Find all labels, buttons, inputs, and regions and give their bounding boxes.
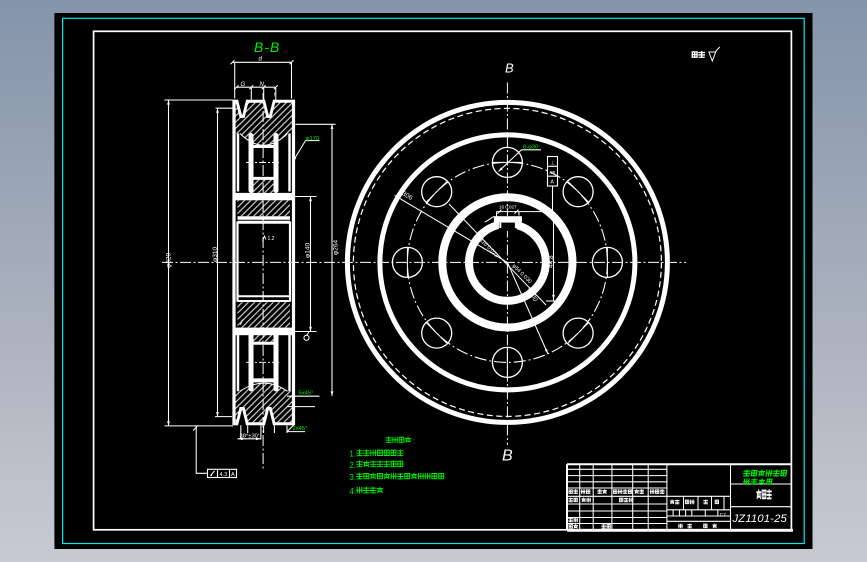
svg-text:φ170: φ170 [306, 136, 319, 142]
svg-text:1.2: 1.2 [268, 236, 275, 242]
svg-text:φ310: φ310 [212, 247, 219, 262]
svg-text:3.: 3. [349, 473, 356, 482]
svg-text:38°±30': 38°±30' [240, 434, 260, 440]
svg-text:.08: .08 [549, 170, 556, 175]
svg-text:8-φ30: 8-φ30 [523, 144, 538, 150]
svg-text:φ140: φ140 [305, 243, 312, 258]
svg-text:5x45°: 5x45° [299, 390, 314, 396]
svg-text:φ264: φ264 [333, 240, 340, 255]
svg-text:B: B [505, 61, 514, 76]
svg-text:A: A [231, 472, 235, 478]
svg-text:φ320: φ320 [166, 253, 173, 268]
svg-text:G: G [241, 82, 246, 88]
svg-text:44.8: 44.8 [548, 255, 555, 268]
svg-text:C7: C7 [720, 512, 726, 518]
svg-text:⊥: ⊥ [551, 161, 555, 167]
svg-text:4.3: 4.3 [220, 472, 228, 478]
svg-text:2x45°: 2x45° [293, 426, 308, 432]
svg-text:2.: 2. [349, 461, 356, 470]
svg-text:N: N [260, 82, 265, 88]
svg-text::: : [413, 438, 415, 445]
svg-text:1.: 1. [349, 450, 356, 459]
svg-text:B-B: B-B [254, 39, 280, 55]
svg-text:JZ1101-25: JZ1101-25 [732, 513, 788, 525]
svg-text:4.: 4. [349, 487, 356, 496]
svg-text:16 0.027: 16 0.027 [499, 204, 517, 209]
svg-text:B: B [502, 448, 513, 465]
